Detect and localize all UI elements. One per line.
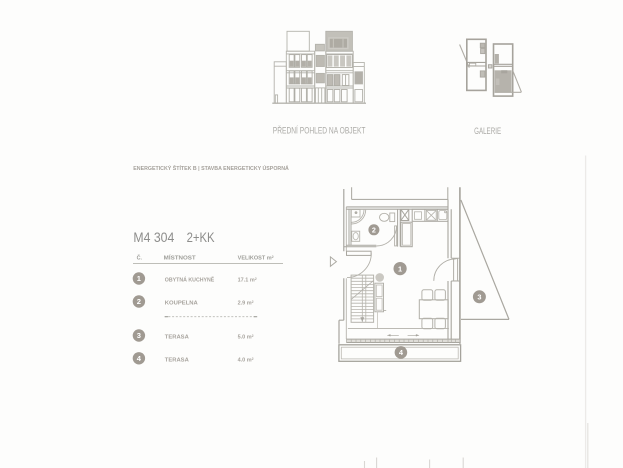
svg-text:4.0 m2: 4.0 m2 [238, 357, 254, 364]
svg-text:M4 304: M4 304 [133, 230, 174, 245]
svg-text:5.0 m2: 5.0 m2 [238, 334, 254, 341]
svg-text:ENERGETICKÝ ŠTÍTEK B | STAVBA: ENERGETICKÝ ŠTÍTEK B | STAVBA ENERGETICK… [133, 164, 289, 172]
svg-text:2: 2 [372, 225, 376, 234]
svg-text:GALERIE: GALERIE [474, 126, 501, 136]
svg-text:TERASA: TERASA [165, 357, 189, 363]
svg-text:2.9 m2: 2.9 m2 [238, 300, 254, 307]
svg-text:KOUPELNA: KOUPELNA [165, 301, 198, 307]
svg-text:PŘEDNÍ POHLED NA OBJEKT: PŘEDNÍ POHLED NA OBJEKT [273, 125, 366, 135]
svg-text:3: 3 [137, 331, 141, 340]
svg-text:2: 2 [137, 297, 141, 306]
svg-text:VELIKOST m2: VELIKOST m2 [238, 255, 274, 262]
svg-text:Č.: Č. [137, 255, 143, 262]
svg-text:OBYTNÁ KUCHYNĚ: OBYTNÁ KUCHYNĚ [165, 276, 215, 284]
svg-text:2+KK: 2+KK [187, 230, 215, 245]
svg-text:17.1 m2: 17.1 m2 [238, 277, 257, 284]
svg-text:TERASA: TERASA [165, 335, 189, 341]
svg-text:MÍSTNOST: MÍSTNOST [164, 254, 197, 262]
svg-text:3: 3 [477, 293, 481, 302]
svg-text:1: 1 [398, 264, 402, 273]
